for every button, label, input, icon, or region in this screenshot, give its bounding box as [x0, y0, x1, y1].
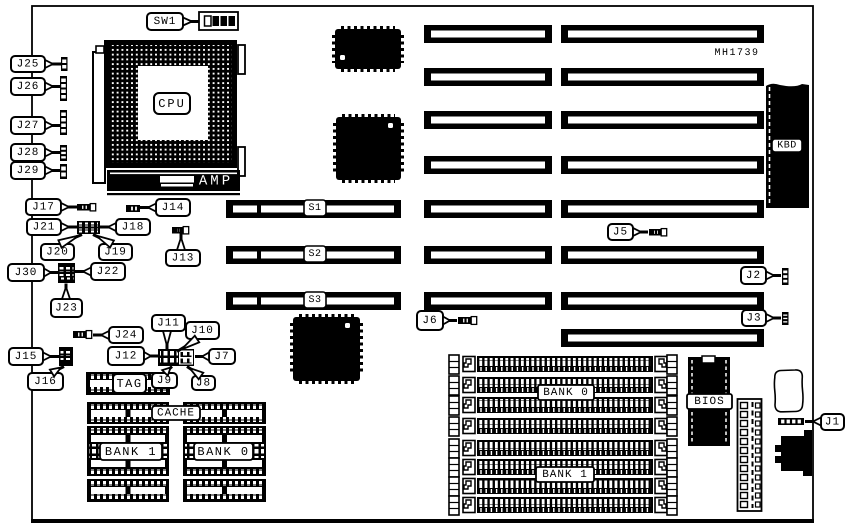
svg-text:J12: J12 [115, 351, 138, 363]
svg-text:J22: J22 [97, 266, 120, 278]
svg-text:J13: J13 [172, 253, 195, 265]
svg-text:J24: J24 [115, 330, 138, 342]
svg-text:J16: J16 [34, 376, 57, 388]
svg-text:J3: J3 [746, 313, 761, 325]
svg-text:J28: J28 [17, 147, 40, 159]
svg-text:J2: J2 [746, 270, 761, 282]
svg-text:J6: J6 [422, 315, 437, 327]
svg-text:CACHE: CACHE [157, 408, 195, 420]
svg-text:BANK 0: BANK 0 [543, 387, 589, 399]
svg-text:TAG: TAG [116, 377, 142, 391]
svg-text:S1: S1 [308, 203, 321, 214]
svg-text:J18: J18 [122, 222, 145, 234]
svg-text:J21: J21 [33, 222, 56, 234]
svg-text:J15: J15 [15, 351, 38, 363]
svg-text:J23: J23 [55, 303, 78, 315]
svg-text:J5: J5 [613, 227, 628, 239]
svg-text:J17: J17 [32, 202, 55, 214]
svg-text:J9: J9 [157, 375, 172, 387]
svg-text:BANK 0: BANK 0 [197, 445, 249, 459]
svg-text:J30: J30 [15, 267, 38, 279]
svg-text:J11: J11 [157, 318, 180, 330]
svg-text:CPU: CPU [158, 97, 186, 111]
svg-text:BANK 1: BANK 1 [105, 445, 157, 459]
svg-text:S3: S3 [308, 295, 321, 306]
svg-text:S2: S2 [308, 249, 321, 260]
svg-text:J29: J29 [17, 165, 40, 177]
svg-text:SW1: SW1 [154, 16, 177, 28]
svg-text:J25: J25 [17, 59, 40, 71]
svg-text:J14: J14 [162, 202, 185, 214]
svg-text:KBD: KBD [777, 141, 797, 152]
svg-text:J7: J7 [214, 351, 229, 363]
svg-text:J20: J20 [46, 247, 69, 259]
svg-text:J1: J1 [825, 417, 840, 429]
svg-text:AMP: AMP [199, 174, 233, 190]
svg-text:J27: J27 [17, 120, 40, 132]
svg-text:MH1739: MH1739 [714, 48, 759, 59]
svg-text:J26: J26 [17, 81, 40, 93]
svg-text:J19: J19 [104, 247, 127, 259]
svg-text:BANK 1: BANK 1 [542, 469, 588, 481]
svg-text:BIOS: BIOS [694, 396, 724, 408]
